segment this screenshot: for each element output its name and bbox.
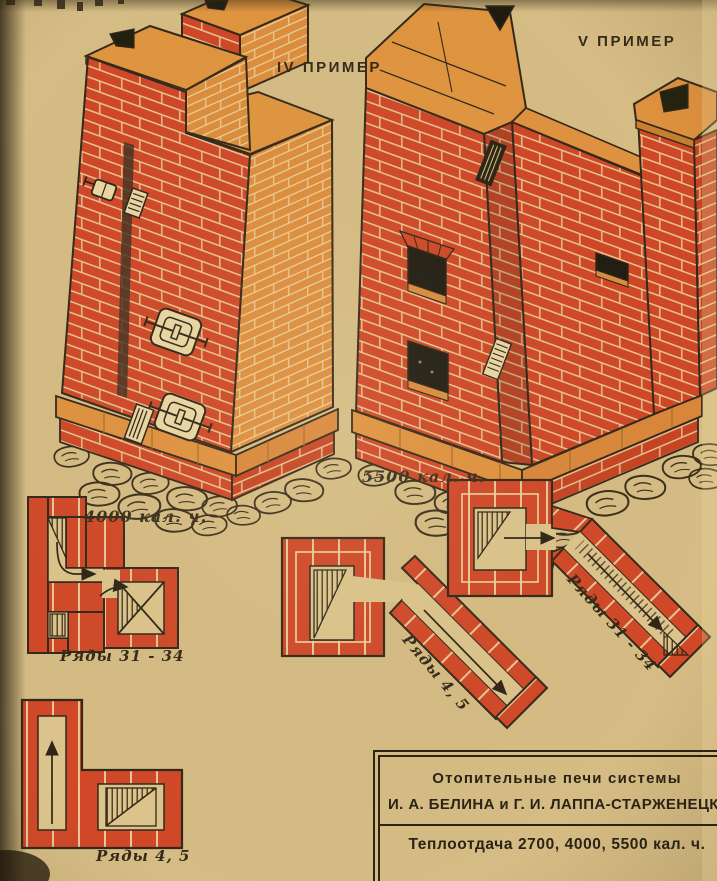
poster-page: IV ПРИМЕР V ПРИМЕР 4000 кал. ч. 5500 кал… xyxy=(0,0,717,881)
stove-iv-example-label: IV ПРИМЕР xyxy=(277,59,382,76)
plan1-small-hatch xyxy=(50,614,65,636)
plan1-rows-label: Ряды 31 - 34 xyxy=(59,647,185,665)
stove-iv-rear-flue-opening xyxy=(205,0,228,10)
info-box-authors: И. А. БЕЛИНА и Г. И. ЛАППА-СТАРЖЕНЕЦКО xyxy=(380,796,717,813)
plan2-rows-label: Ряды 4, 5 xyxy=(95,847,190,865)
stove-v-example-label: V ПРИМЕР xyxy=(578,33,676,50)
info-box-divider xyxy=(380,824,717,826)
info-box-title: Отопительные печи системы xyxy=(380,770,717,787)
stove-v-heat-label: 5500 кал. ч. xyxy=(362,467,485,486)
stove-iv-heat-label: 4000 кал. ч. xyxy=(84,507,207,526)
info-box-inner-border: Отопительные печи системы И. А. БЕЛИНА и… xyxy=(378,755,717,881)
info-box: Отопительные печи системы И. А. БЕЛИНА и… xyxy=(373,750,717,881)
info-box-heat-output: Теплоотдача 2700, 4000, 5500 кал. ч. xyxy=(380,836,717,854)
poster-illustration: IV ПРИМЕР V ПРИМЕР 4000 кал. ч. 5500 кал… xyxy=(0,0,717,881)
